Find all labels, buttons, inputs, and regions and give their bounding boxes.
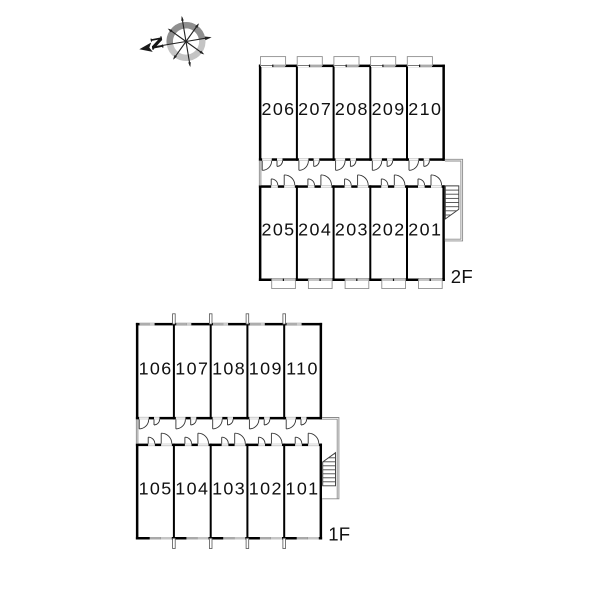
svg-text:207: 207 [298,99,332,119]
svg-text:210: 210 [408,99,442,119]
svg-text:101: 101 [285,479,319,499]
svg-text:206: 206 [261,99,295,119]
svg-text:106: 106 [139,359,173,379]
svg-text:2F: 2F [451,266,473,287]
svg-text:108: 108 [212,359,246,379]
svg-text:204: 204 [298,220,332,240]
svg-text:203: 203 [335,220,369,240]
svg-text:201: 201 [408,220,442,240]
svg-text:209: 209 [372,99,406,119]
svg-text:105: 105 [139,479,173,499]
svg-text:205: 205 [261,220,295,240]
svg-text:107: 107 [175,359,209,379]
svg-text:1F: 1F [328,524,350,545]
svg-text:103: 103 [212,479,246,499]
svg-text:104: 104 [175,479,209,499]
svg-text:208: 208 [335,99,369,119]
svg-text:202: 202 [372,220,406,240]
svg-text:110: 110 [286,359,319,379]
svg-text:102: 102 [249,479,283,499]
svg-text:109: 109 [249,359,283,379]
